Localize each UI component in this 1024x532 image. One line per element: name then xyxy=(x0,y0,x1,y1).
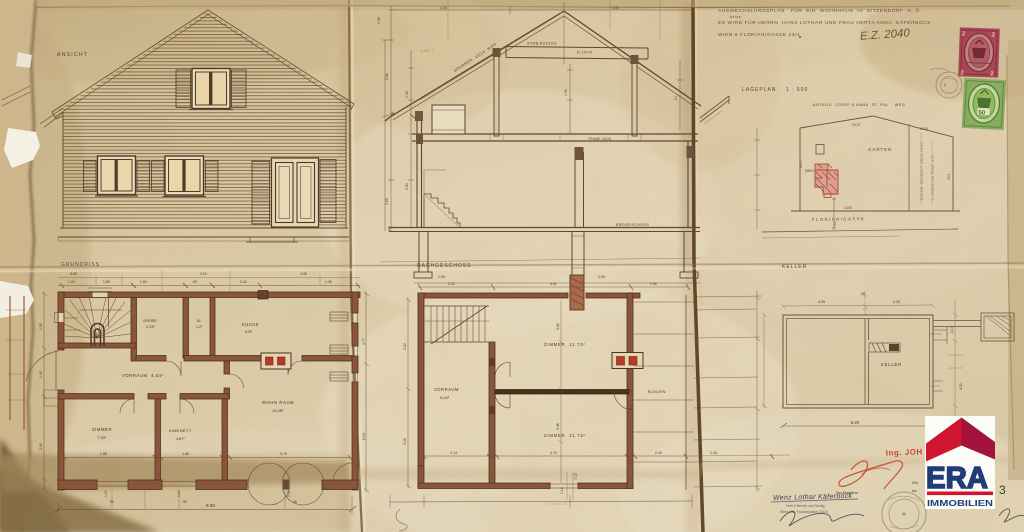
svg-text:4,7 und 1,90: 4,7 und 1,90 xyxy=(545,501,568,506)
svg-text:3.70: 3.70 xyxy=(280,452,287,456)
svg-text:4.30: 4.30 xyxy=(959,383,963,390)
svg-text:2.1: 2.1 xyxy=(674,95,678,100)
svg-text:2.10: 2.10 xyxy=(200,272,207,276)
svg-text:J. EIGENTUM PARZ. 171: J. EIGENTUM PARZ. 171 xyxy=(931,155,935,200)
svg-text:4.35: 4.35 xyxy=(818,300,825,304)
svg-text:3.62: 3.62 xyxy=(556,323,560,330)
svg-text:4.70: 4.70 xyxy=(550,451,557,455)
svg-text:1.80: 1.80 xyxy=(182,452,189,456)
svg-text:KL: KL xyxy=(197,319,201,323)
svg-text:90: 90 xyxy=(183,500,187,504)
svg-text:3.45: 3.45 xyxy=(556,423,560,430)
svg-text:IMMOBILIEN: IMMOBILIEN xyxy=(927,499,994,508)
svg-text:2.30: 2.30 xyxy=(448,282,455,286)
svg-text:GARTEN: GARTEN xyxy=(868,147,892,152)
svg-text:VORRAUM: VORRAUM xyxy=(434,387,459,392)
svg-text:2.62: 2.62 xyxy=(403,343,407,350)
svg-text:6.10: 6.10 xyxy=(362,433,366,440)
svg-text:ANTEILE JOSEF & ANNA ST. PöL: ANTEILE JOSEF & ANNA ST. PöL WEG xyxy=(813,103,905,107)
svg-text:STMB AUFZUG: STMB AUFZUG xyxy=(527,42,557,46)
svg-text:WOHN RAUM: WOHN RAUM xyxy=(262,400,294,405)
svg-text:GRUNDRISS: GRUNDRISS xyxy=(61,262,100,268)
svg-text:EBEN: EBEN xyxy=(805,169,814,173)
svg-text:1.10: 1.10 xyxy=(104,490,108,497)
svg-text:50: 50 xyxy=(978,110,986,116)
svg-text:Ing. JOH: Ing. JOH xyxy=(886,447,923,457)
svg-text:TRAME 26/26: TRAME 26/26 xyxy=(588,137,611,141)
svg-text:2.60: 2.60 xyxy=(39,443,43,450)
svg-text:2.10: 2.10 xyxy=(287,490,291,497)
svg-text:1.90: 1.90 xyxy=(140,280,147,284)
svg-text:1,2²: 1,2² xyxy=(196,325,203,329)
svg-text:46: 46 xyxy=(293,500,297,504)
svg-text:WIEN 8 FLORIANIGASSE 23/4: WIEN 8 FLORIANIGASSE 23/4 xyxy=(718,32,800,38)
svg-text:beide: beide xyxy=(730,15,741,19)
svg-text:2.60: 2.60 xyxy=(385,198,389,205)
svg-text:2.60: 2.60 xyxy=(405,183,409,190)
svg-text:5.55: 5.55 xyxy=(70,272,77,276)
svg-text:KÜCHE: KÜCHE xyxy=(242,322,259,327)
svg-text:1.10: 1.10 xyxy=(710,451,717,455)
svg-text:BODEN: BODEN xyxy=(648,389,666,394)
svg-text:16.47: 16.47 xyxy=(799,160,803,168)
svg-text:ERDGESCHOSS: ERDGESCHOSS xyxy=(616,223,650,227)
svg-text:ZIMMER: ZIMMER xyxy=(92,427,112,432)
svg-text:1.40: 1.40 xyxy=(39,371,43,378)
svg-text:2.84: 2.84 xyxy=(385,73,389,80)
svg-text:ANSICHT: ANSICHT xyxy=(57,52,88,58)
svg-text:NACHB. GRUNDST. ANNA LEHR: NACHB. GRUNDST. ANNA LEHR xyxy=(920,142,924,200)
svg-text:N 14/70: N 14/70 xyxy=(577,51,592,55)
svg-text:3: 3 xyxy=(999,483,1006,497)
svg-text:19,45²: 19,45² xyxy=(272,408,284,413)
svg-text:3.0: 3.0 xyxy=(833,221,837,226)
svg-text:KABINETT: KABINETT xyxy=(169,428,192,433)
svg-text:3.58: 3.58 xyxy=(377,17,381,24)
svg-text:AUSWECHSLUNGSPLAN FÜR EIN: AUSWECHSLUNGSPLAN FÜR EIN WOHNHAUS IN SI… xyxy=(718,7,922,14)
svg-text:KELLER: KELLER xyxy=(782,264,807,270)
svg-text:2.14: 2.14 xyxy=(450,451,457,455)
svg-text:LAGEPLAN 1 : 500: LAGEPLAN 1 : 500 xyxy=(742,87,808,93)
svg-text:Der Magistrat: Der Magistrat xyxy=(836,491,858,495)
svg-text:3.40: 3.40 xyxy=(240,280,247,284)
svg-text:1:50 ?: 1:50 ? xyxy=(420,48,434,53)
svg-text:9,04²: 9,04² xyxy=(440,395,450,400)
svg-text:7,33²: 7,33² xyxy=(97,435,107,440)
svg-text:1.90: 1.90 xyxy=(564,89,568,96)
svg-text:2.10: 2.10 xyxy=(893,300,900,304)
svg-text:7.10: 7.10 xyxy=(574,473,578,480)
svg-text:4.35: 4.35 xyxy=(300,272,307,276)
svg-text:VORRAUM 4,64²: VORRAUM 4,64² xyxy=(122,373,164,378)
svg-text:ES WIRD FÜR HERRN HANS LOTHAR: ES WIRD FÜR HERRN HANS LOTHAR UND FRAU H… xyxy=(718,19,931,26)
svg-text:4.41: 4.41 xyxy=(550,282,557,286)
svg-text:Wo: Wo xyxy=(912,480,919,485)
svg-text:1.20: 1.20 xyxy=(68,280,75,284)
svg-text:1.45: 1.45 xyxy=(325,280,332,284)
svg-text:Heft 6 Bezirk und Siedlg.: Heft 6 Bezirk und Siedlg. xyxy=(786,504,826,508)
svg-text:8.20: 8.20 xyxy=(851,420,860,425)
svg-text:ZIMMER 11,73²: ZIMMER 11,73² xyxy=(544,342,586,347)
svg-text:2.10: 2.10 xyxy=(655,451,662,455)
svg-text:2.10: 2.10 xyxy=(950,326,954,333)
svg-text:FLORIANIGASSE: FLORIANIGASSE xyxy=(812,216,865,222)
svg-text:2.88: 2.88 xyxy=(100,452,107,456)
svg-text:1.40: 1.40 xyxy=(405,91,409,98)
svg-text:1.05: 1.05 xyxy=(438,275,445,279)
svg-text:1.55: 1.55 xyxy=(103,280,110,284)
svg-text:4.35: 4.35 xyxy=(440,6,447,10)
svg-text:2.05: 2.05 xyxy=(598,275,605,279)
svg-text:3.45: 3.45 xyxy=(403,438,407,445)
svg-text:ERA: ERA xyxy=(926,460,988,495)
svg-text:9.00: 9.00 xyxy=(206,503,215,508)
svg-text:23.70: 23.70 xyxy=(852,123,860,127)
svg-text:1.10: 1.10 xyxy=(560,487,564,494)
svg-text:30: 30 xyxy=(391,112,395,116)
svg-text:9,6²: 9,6² xyxy=(245,329,253,334)
svg-text:.90: .90 xyxy=(192,280,197,284)
svg-text:.26: .26 xyxy=(860,292,865,296)
svg-text:ha.: ha. xyxy=(912,488,918,493)
svg-text:KELLER: KELLER xyxy=(881,362,902,367)
svg-text:4,13²: 4,13² xyxy=(146,325,155,329)
svg-text:14.05: 14.05 xyxy=(920,127,928,131)
svg-text:SPEISE: SPEISE xyxy=(143,319,157,323)
svg-text:1.90: 1.90 xyxy=(650,282,657,286)
svg-text:13.90: 13.90 xyxy=(844,206,852,210)
svg-text:DACHGESCHOSS: DACHGESCHOSS xyxy=(417,263,472,269)
svg-text:4,87²: 4,87² xyxy=(176,437,185,441)
svg-text:15.9: 15.9 xyxy=(947,174,951,180)
svg-text:4.77: 4.77 xyxy=(362,338,366,345)
svg-text:4.35: 4.35 xyxy=(612,6,619,10)
svg-text:1.55: 1.55 xyxy=(39,323,43,330)
svg-text:ZIMMER 11,73²: ZIMMER 11,73² xyxy=(544,433,586,438)
